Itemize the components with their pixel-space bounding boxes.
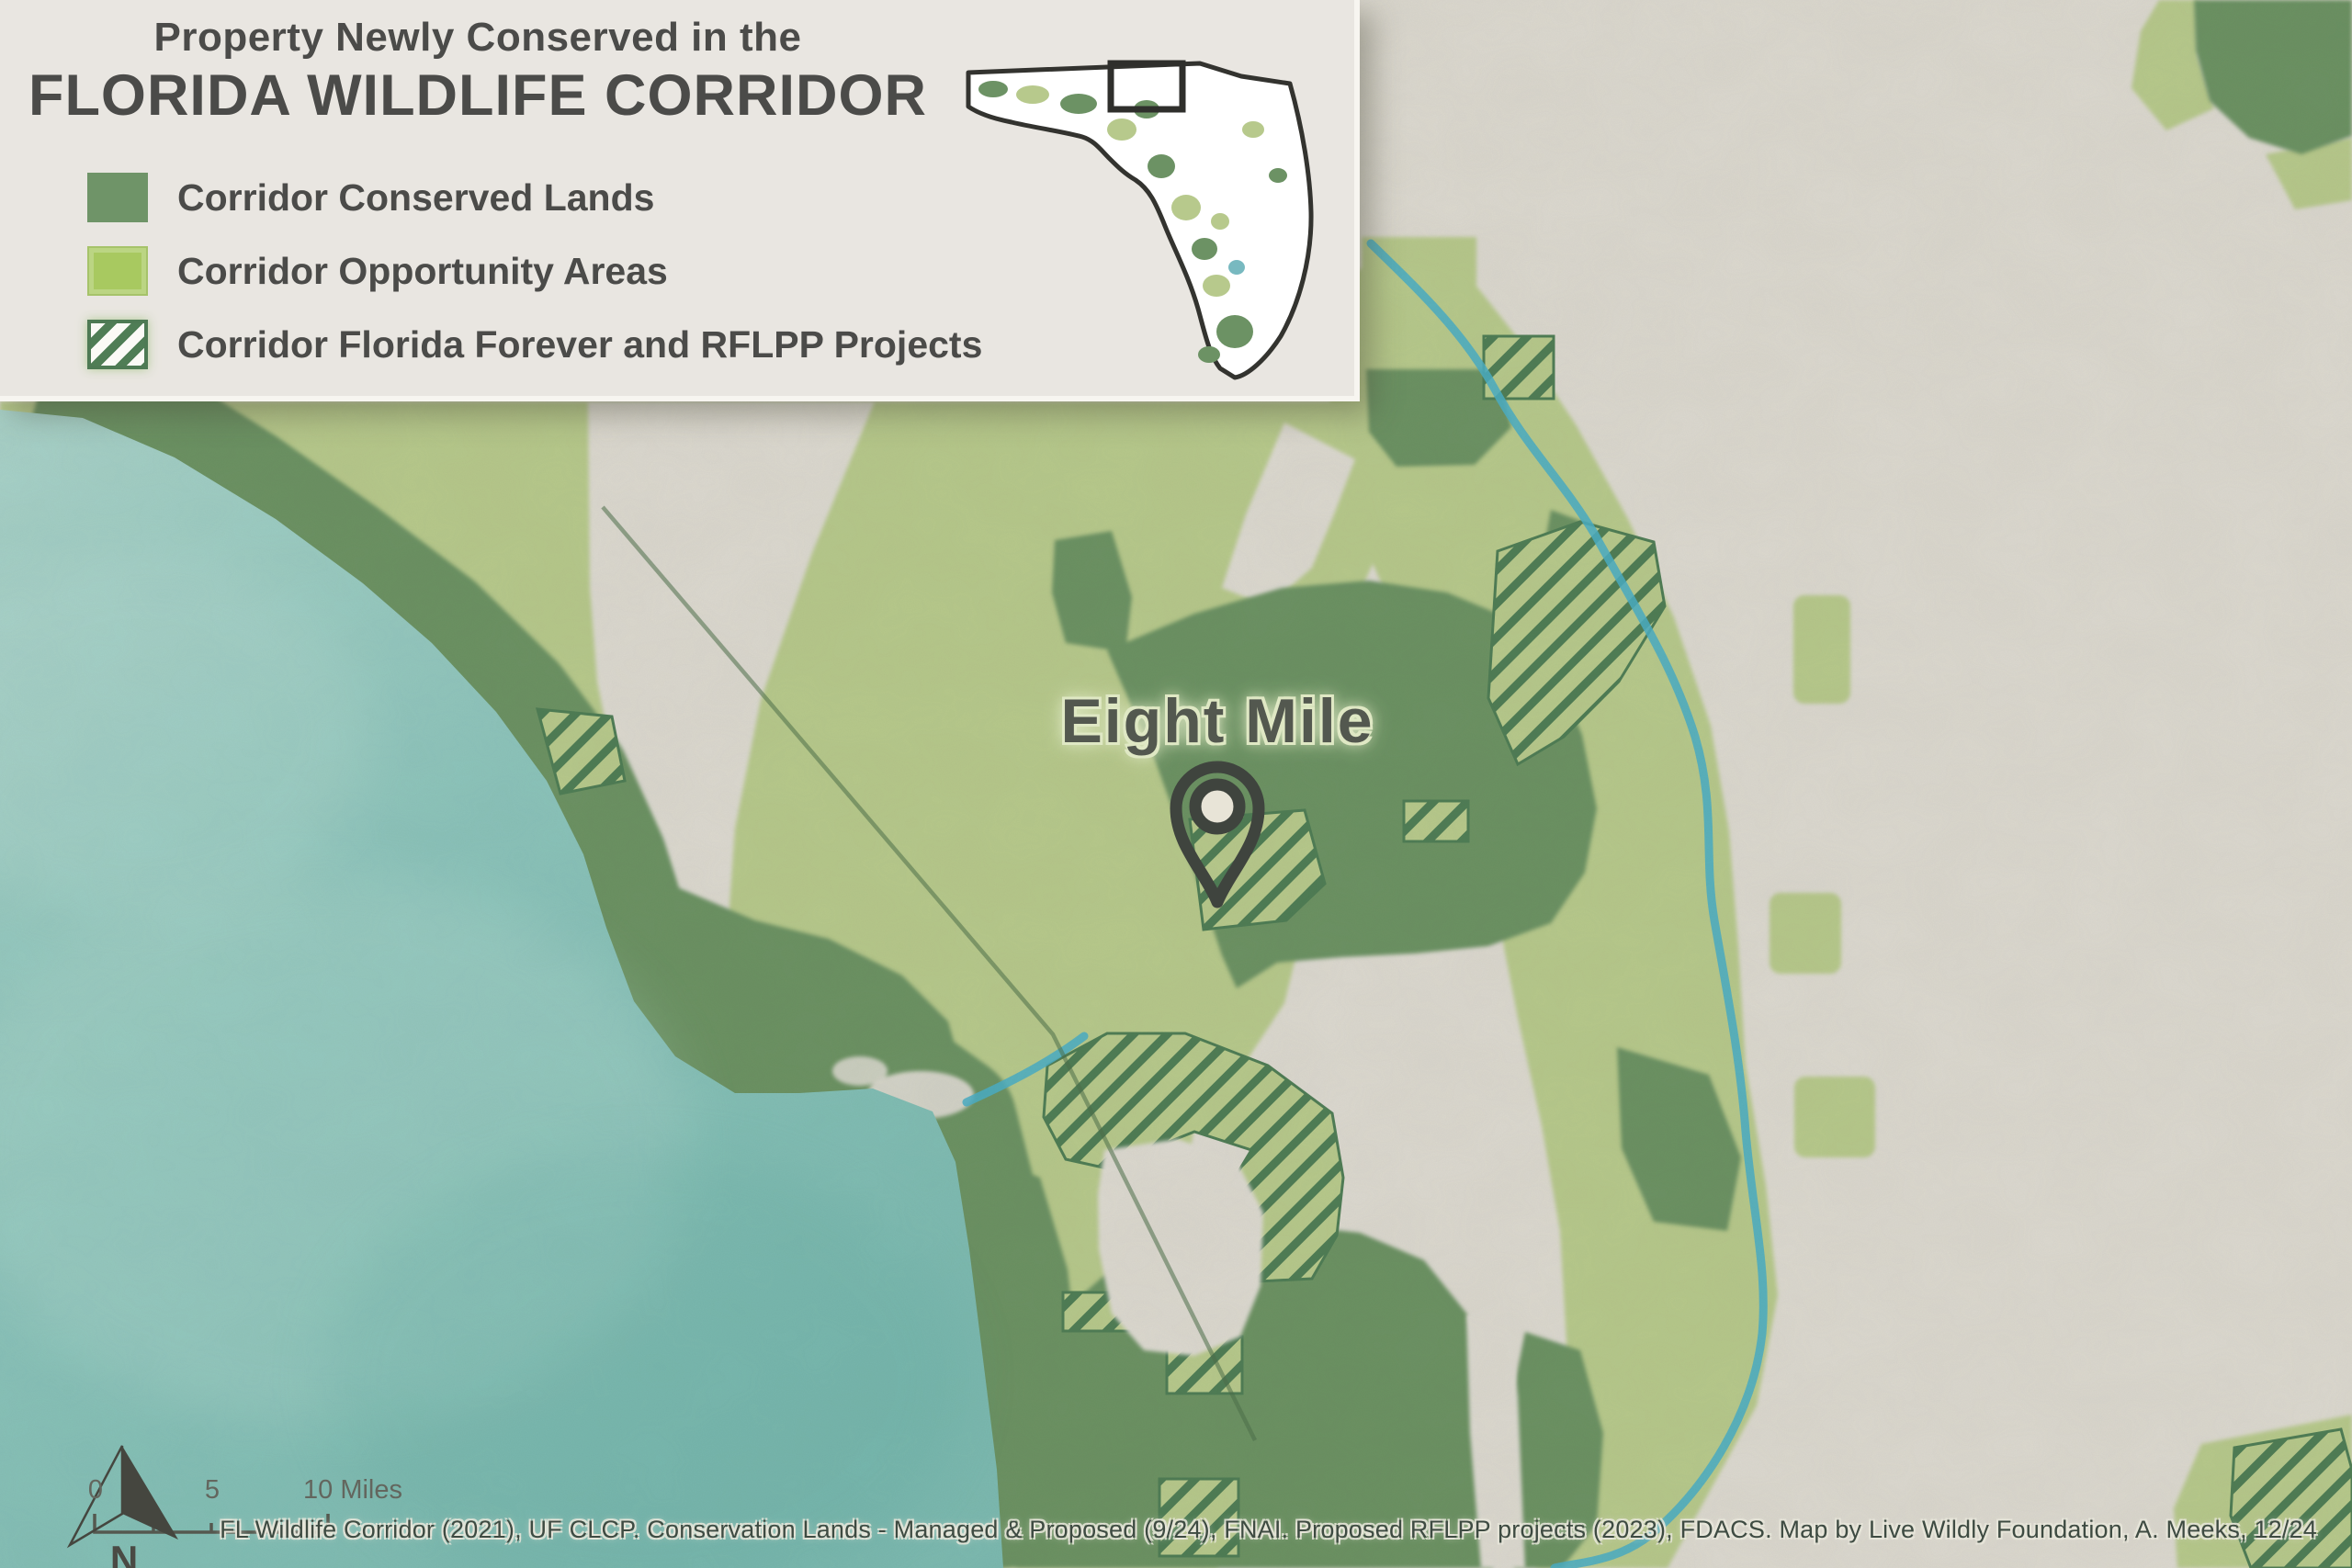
legend-item-label: Corridor Conserved Lands bbox=[177, 176, 654, 220]
legend-item-label: Corridor Opportunity Areas bbox=[177, 250, 668, 293]
attribution-text: FL Wildlife Corridor (2021), UF CLCP. Co… bbox=[220, 1516, 2317, 1544]
conserved-lands-swatch bbox=[87, 173, 148, 222]
north-arrow-label: N bbox=[95, 1538, 153, 1568]
legend-panel: Property Newly Conserved in the FLORIDA … bbox=[0, 0, 1360, 401]
scale-label-0: 0 bbox=[77, 1475, 114, 1506]
legend-item-projects: Corridor Florida Forever and RFLPP Proje… bbox=[87, 320, 982, 369]
projects-hatched-swatch bbox=[87, 320, 148, 369]
map-title: FLORIDA WILDLIFE CORRIDOR bbox=[18, 62, 937, 129]
legend-item-conserved-lands: Corridor Conserved Lands bbox=[87, 173, 982, 222]
opportunity-areas-swatch bbox=[87, 246, 148, 296]
florida-inset-map bbox=[933, 6, 1319, 396]
legend-item-opportunity-areas: Corridor Opportunity Areas bbox=[87, 246, 982, 296]
legend-item-label: Corridor Florida Forever and RFLPP Proje… bbox=[177, 323, 982, 367]
scale-label-5: 5 bbox=[194, 1475, 231, 1506]
legend-titles: Property Newly Conserved in the FLORIDA … bbox=[18, 15, 937, 129]
legend-items: Corridor Conserved Lands Corridor Opport… bbox=[87, 173, 982, 369]
map-poster: Property Newly Conserved in the FLORIDA … bbox=[0, 0, 2352, 1568]
map-subtitle: Property Newly Conserved in the bbox=[18, 15, 937, 61]
scale-label-miles: 10 Miles bbox=[303, 1475, 487, 1506]
